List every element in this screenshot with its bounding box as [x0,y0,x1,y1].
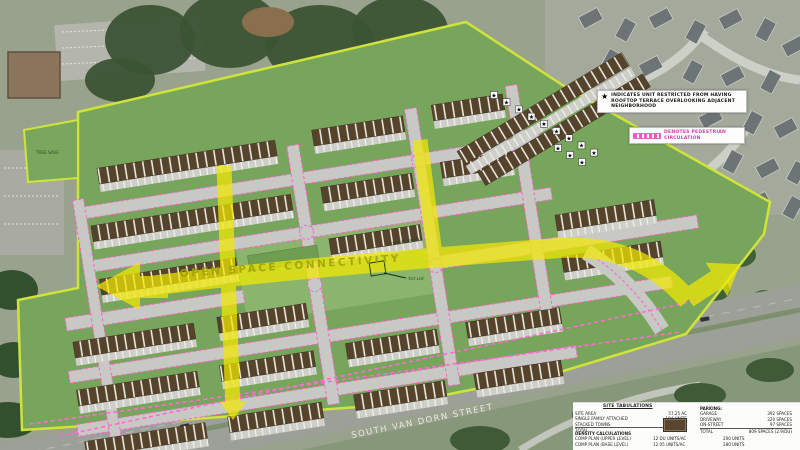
townhouse-color-swatch [663,418,687,432]
parking-table: PARKING:GARAGE392 SPACESDRIVEWAY320 SPAC… [700,406,792,434]
dirt-patch [242,7,294,37]
star-icon: ★ [555,145,560,152]
legend-pedestrian-note: DENOTES PEDESTRIAN CIRCULATION [629,127,745,144]
site-tabulation-panel: SITE TABULATIONS SITE AREA57.25 ACSINGLE… [573,402,800,450]
site-plan-map: ★★★★★★★★★★★★ OPEN SPACE CONNECTIVITY SOU… [0,0,800,450]
density-row: COMP PLAN (BASE LEVEL)12.05 UNITS/AC280 … [575,442,795,447]
star-icon: ★ [554,128,559,135]
star-icon: ★ [579,143,584,150]
star-icon: ★ [504,100,509,107]
star-icon: ★ [541,121,546,128]
star-icon: ★ [591,150,596,157]
star-icon: ★ [491,92,496,99]
density-table: DENSITY CALCULATIONSCOMP PLAN (UPPER LEV… [575,431,795,447]
tree-canopy [746,358,794,382]
legend-star-note-text: INDICATES UNIT RESTRICTED FROM HAVING RO… [611,93,743,110]
star-icon: ★ [516,107,521,114]
star-icon: ★ [566,136,571,143]
star-icon: ★ [579,159,584,166]
site-table-header: SITE TABULATIONS [603,404,653,409]
tot-lot-label: TOT LOT [407,276,425,281]
tree-save-label: TREE SAVE [35,150,59,155]
legend-pedestrian-note-text: DENOTES PEDESTRIAN CIRCULATION [664,130,741,141]
star-icon: ★ [601,93,608,101]
pink-dash-icon [633,133,661,139]
aerial-site-plan-canvas: ★★★★★★★★★★★★ OPEN SPACE CONNECTIVITY SOU… [0,0,800,450]
legend-star-note: ★ INDICATES UNIT RESTRICTED FROM HAVING … [597,90,747,113]
star-icon: ★ [567,152,572,159]
table-row: ON-STREET97 SPACES [700,422,792,427]
star-icon: ★ [529,114,534,121]
large-building [8,52,60,98]
